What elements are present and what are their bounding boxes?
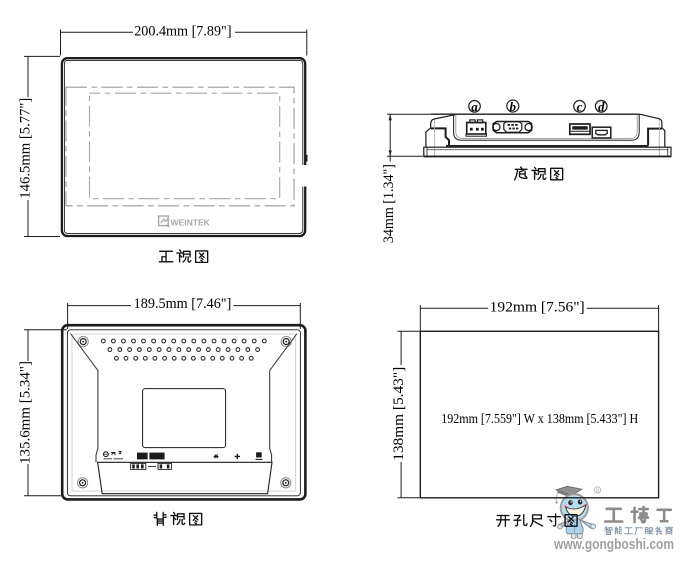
- svg-text:200.4mm [7.89"]: 200.4mm [7.89"]: [134, 24, 231, 40]
- svg-text:www.gongboshi.com: www.gongboshi.com: [553, 537, 674, 553]
- svg-text:b: b: [510, 99, 517, 114]
- svg-text:192mm [7.559"] W x 138mm [5.43: 192mm [7.559"] W x 138mm [5.433"] H: [441, 411, 638, 426]
- svg-text:R: R: [596, 488, 600, 494]
- svg-text:192mm [7.56"]: 192mm [7.56"]: [490, 300, 585, 316]
- svg-text:189.5mm [7.46"]: 189.5mm [7.46"]: [134, 296, 232, 312]
- svg-text:34mm [1.34"]: 34mm [1.34"]: [381, 164, 397, 243]
- svg-text:146.5mm [5.77"]: 146.5mm [5.77"]: [18, 98, 34, 199]
- svg-text:a: a: [471, 99, 478, 114]
- svg-text:d: d: [598, 99, 605, 114]
- svg-text:WEINTEK: WEINTEK: [171, 217, 210, 227]
- svg-text:135.6mm [5.34"]: 135.6mm [5.34"]: [18, 361, 34, 464]
- svg-text:138mm [5.43"]: 138mm [5.43"]: [391, 367, 407, 461]
- svg-text:c: c: [577, 99, 583, 114]
